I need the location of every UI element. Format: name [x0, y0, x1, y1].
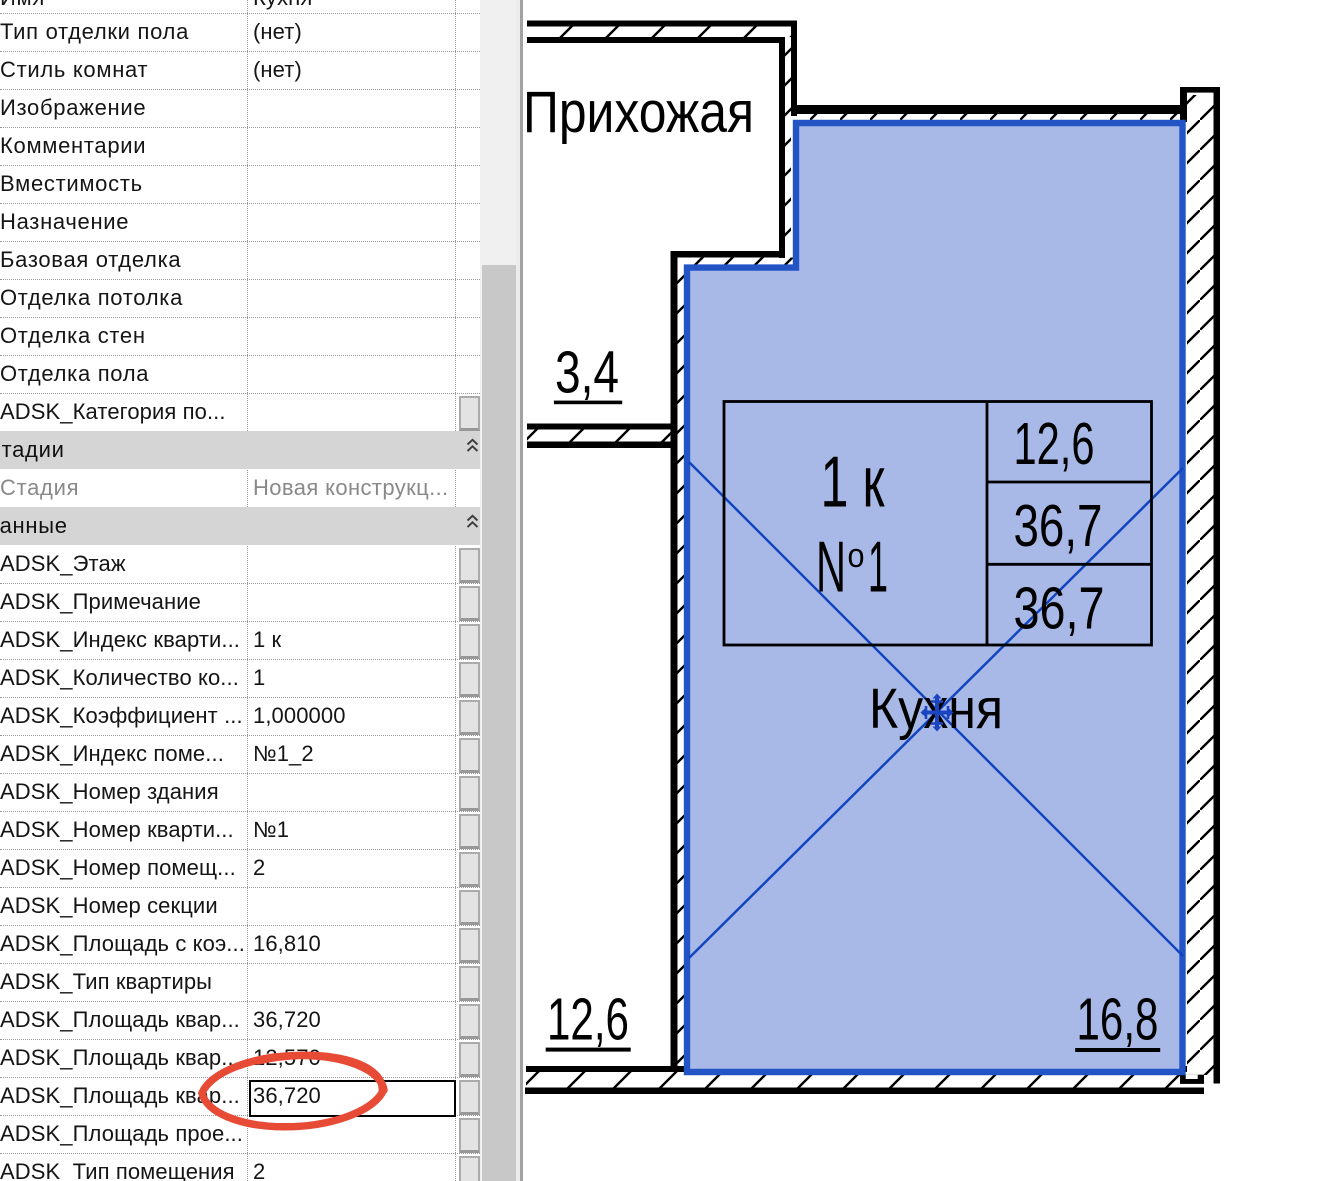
svg-text:1 к: 1 к: [821, 443, 885, 523]
svg-text:16,8: 16,8: [1077, 987, 1159, 1053]
svg-text:1: 1: [868, 527, 888, 607]
svg-text:N: N: [816, 527, 846, 607]
svg-text:o: o: [848, 537, 865, 575]
svg-text:12,6: 12,6: [547, 987, 629, 1053]
svg-text:Прихожая: Прихожая: [523, 80, 754, 145]
svg-text:36,7: 36,7: [1014, 493, 1103, 559]
svg-text:36,7: 36,7: [1014, 576, 1105, 642]
svg-text:3,4: 3,4: [555, 340, 619, 406]
svg-text:12,6: 12,6: [1014, 411, 1095, 477]
